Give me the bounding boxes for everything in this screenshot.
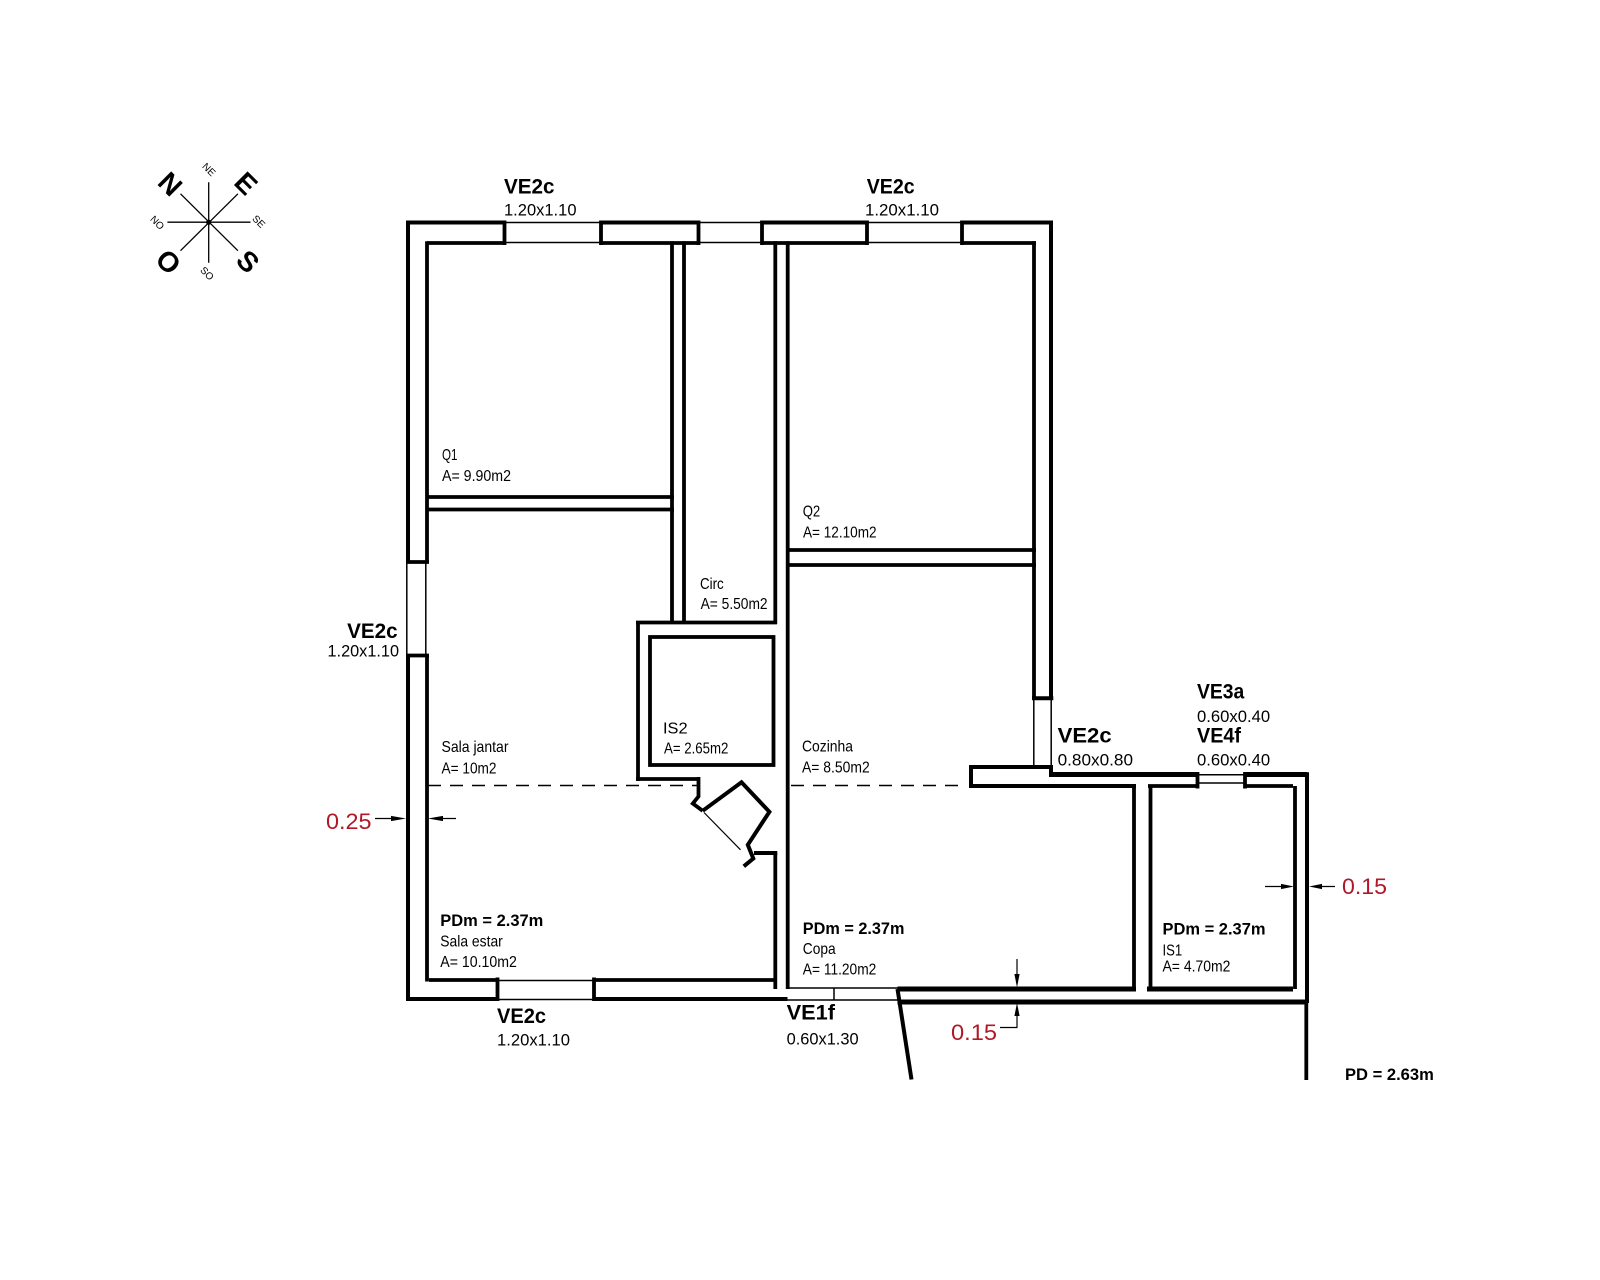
- svg-text:1.20x1.10: 1.20x1.10: [497, 1032, 570, 1050]
- svg-text:A= 12.10m2: A= 12.10m2: [803, 525, 877, 542]
- svg-text:VE2c: VE2c: [497, 1005, 546, 1028]
- svg-text:VE4f: VE4f: [1197, 724, 1242, 747]
- svg-text:Sala estar: Sala estar: [440, 934, 503, 951]
- svg-text:O: O: [150, 243, 187, 280]
- svg-text:SE: SE: [250, 214, 267, 231]
- svg-text:VE2c: VE2c: [1058, 724, 1112, 747]
- svg-text:1.20x1.10: 1.20x1.10: [865, 202, 939, 220]
- svg-text:Circ: Circ: [700, 576, 724, 593]
- svg-text:PDm = 2.37m: PDm = 2.37m: [1163, 921, 1266, 939]
- svg-text:Copa: Copa: [803, 941, 836, 958]
- svg-text:S: S: [230, 244, 265, 279]
- svg-text:0.60x0.40: 0.60x0.40: [1197, 708, 1270, 726]
- svg-text:A= 8.50m2: A= 8.50m2: [802, 760, 870, 777]
- svg-text:A= 10.10m2: A= 10.10m2: [440, 954, 517, 971]
- svg-text:VE3a: VE3a: [1197, 681, 1245, 704]
- svg-text:NO: NO: [147, 214, 166, 233]
- svg-text:Sala jantar: Sala jantar: [442, 739, 510, 756]
- svg-text:VE1f: VE1f: [787, 1002, 836, 1025]
- svg-text:A= 11.20m2: A= 11.20m2: [803, 962, 877, 979]
- svg-text:0.60x1.30: 0.60x1.30: [787, 1031, 859, 1049]
- svg-text:VE2c: VE2c: [347, 620, 398, 643]
- svg-text:Cozinha: Cozinha: [802, 739, 853, 756]
- svg-text:0.80x0.80: 0.80x0.80: [1058, 752, 1133, 770]
- svg-text:E: E: [228, 166, 263, 201]
- svg-text:PDm = 2.37m: PDm = 2.37m: [440, 912, 543, 930]
- svg-text:NE: NE: [200, 161, 218, 179]
- svg-text:Q1: Q1: [442, 447, 458, 464]
- svg-text:A= 10m2: A= 10m2: [442, 761, 497, 778]
- svg-text:VE2c: VE2c: [867, 176, 915, 199]
- svg-text:1.20x1.10: 1.20x1.10: [504, 202, 577, 220]
- svg-text:PD = 2.63m: PD = 2.63m: [1345, 1066, 1434, 1084]
- svg-text:0.15: 0.15: [1342, 874, 1387, 899]
- svg-text:0.60x0.40: 0.60x0.40: [1197, 752, 1270, 770]
- svg-text:A= 2.65m2: A= 2.65m2: [664, 741, 728, 758]
- svg-text:1.20x1.10: 1.20x1.10: [328, 643, 400, 661]
- svg-text:0.25: 0.25: [326, 809, 372, 834]
- svg-text:A= 9.90m2: A= 9.90m2: [442, 468, 511, 485]
- svg-text:A= 4.70m2: A= 4.70m2: [1163, 959, 1231, 976]
- svg-text:A= 5.50m2: A= 5.50m2: [701, 596, 768, 613]
- svg-text:Q2: Q2: [803, 504, 821, 521]
- svg-text:0.15: 0.15: [951, 1020, 997, 1045]
- svg-text:IS2: IS2: [663, 721, 688, 738]
- svg-text:SO: SO: [197, 265, 215, 283]
- svg-text:PDm = 2.37m: PDm = 2.37m: [803, 920, 905, 938]
- svg-text:VE2c: VE2c: [504, 176, 555, 199]
- svg-text:IS1: IS1: [1163, 943, 1183, 960]
